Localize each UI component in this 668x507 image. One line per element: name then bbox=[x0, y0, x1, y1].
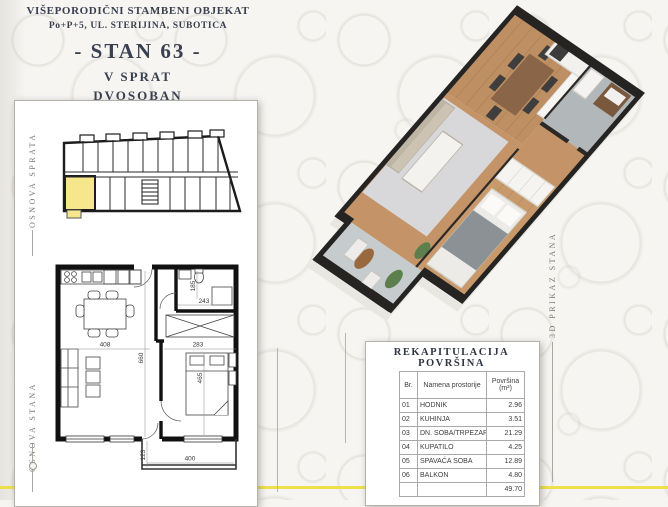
render-3d-label-line bbox=[552, 342, 553, 482]
row-name: KUHINJA bbox=[418, 413, 487, 427]
apartment-plan-drawing: 408 283 660 465 243 185 123 400 bbox=[46, 253, 246, 498]
table-header-row: Br. Namena prostorije Površina (m²) bbox=[400, 372, 525, 399]
row-area: 4.25 bbox=[487, 441, 525, 455]
row-name: SPAVAĆA SOBA bbox=[418, 455, 487, 469]
row-area: 21.29 bbox=[487, 427, 525, 441]
total-br-empty bbox=[400, 483, 418, 497]
table-row: 05 SPAVAĆA SOBA 12.89 bbox=[400, 455, 525, 469]
wardrobe-icon bbox=[166, 315, 234, 337]
row-br: 06 bbox=[400, 469, 418, 483]
dim-bath-depth: 185 bbox=[190, 280, 197, 291]
table-row: 04 KUPATILO 4.25 bbox=[400, 441, 525, 455]
dim-bed-depth: 465 bbox=[197, 372, 204, 383]
row-area: 12.89 bbox=[487, 455, 525, 469]
balcony-outline bbox=[142, 439, 236, 469]
row-br: 03 bbox=[400, 427, 418, 441]
table-row: 06 BALKON 4.80 bbox=[400, 469, 525, 483]
row-name: HODNIK bbox=[418, 399, 487, 413]
table-row: 03 DN. SOBA/TRPEZARIJA 21.29 bbox=[400, 427, 525, 441]
col-header-area: Površina (m²) bbox=[487, 372, 525, 399]
dim-inner-depth: 660 bbox=[138, 352, 145, 363]
floor-plan-label-line bbox=[32, 230, 33, 256]
row-name: DN. SOBA/TRPEZARIJA bbox=[418, 427, 487, 441]
row-br: 02 bbox=[400, 413, 418, 427]
row-name: BALKON bbox=[418, 469, 487, 483]
total-area: 49.70 bbox=[487, 483, 525, 497]
apartment-3d-render bbox=[295, 0, 660, 340]
bed-icon bbox=[186, 353, 236, 415]
apartment-number-title: - STAN 63 - bbox=[0, 41, 276, 62]
col-header-area-line2: (m²) bbox=[499, 385, 512, 392]
row-area: 4.80 bbox=[487, 469, 525, 483]
dim-dining-width: 408 bbox=[100, 342, 111, 349]
row-name: KUPATILO bbox=[418, 441, 487, 455]
sofa-icon bbox=[61, 349, 100, 407]
dim-bath-width: 243 bbox=[199, 298, 210, 305]
total-name-empty bbox=[418, 483, 487, 497]
table-total-row: 49.70 bbox=[400, 483, 525, 497]
area-table: Br. Namena prostorije Površina (m²) 01 H… bbox=[399, 371, 525, 497]
col-header-br: Br. bbox=[400, 372, 418, 399]
dim-balcony-width: 400 bbox=[185, 456, 196, 463]
floor-plan-vertical-label: OSNOVA SPRATA bbox=[28, 126, 37, 228]
col-header-area-line1: Površina bbox=[492, 378, 519, 385]
decorative-divider-line bbox=[345, 333, 346, 443]
building-address: Po+P+5, UL. STERIJINA, SUBOTICA bbox=[0, 22, 276, 32]
line-terminator-dot bbox=[29, 462, 37, 470]
area-table-title: REKAPITULACIJA POVRŠINA bbox=[365, 347, 538, 369]
row-area: 2.96 bbox=[487, 399, 525, 413]
table-row: 01 HODNIK 2.96 bbox=[400, 399, 525, 413]
render-3d-vertical-label: 3D PRIKAZ STANA bbox=[548, 236, 557, 338]
col-header-name: Namena prostorije bbox=[418, 372, 487, 399]
building-title: VIŠEPORODIČNI STAMBENI OBJEKAT bbox=[0, 6, 276, 17]
kitchen-icons bbox=[61, 270, 141, 284]
stair-core bbox=[142, 180, 158, 204]
decorative-divider-line bbox=[277, 348, 278, 492]
dim-balcony-depth: 123 bbox=[140, 449, 147, 460]
row-br: 05 bbox=[400, 455, 418, 469]
highlighted-unit bbox=[65, 176, 95, 210]
floor-label: V SPRAT bbox=[0, 70, 276, 83]
row-br: 01 bbox=[400, 399, 418, 413]
project-header: VIŠEPORODIČNI STAMBENI OBJEKAT Po+P+5, U… bbox=[0, 6, 276, 102]
dining-table-icon bbox=[76, 291, 134, 337]
row-area: 3.51 bbox=[487, 413, 525, 427]
storey-plan-drawing bbox=[50, 123, 246, 229]
table-row: 02 KUHINJA 3.51 bbox=[400, 413, 525, 427]
row-br: 04 bbox=[400, 441, 418, 455]
dim-bedroom-width: 283 bbox=[193, 342, 204, 349]
